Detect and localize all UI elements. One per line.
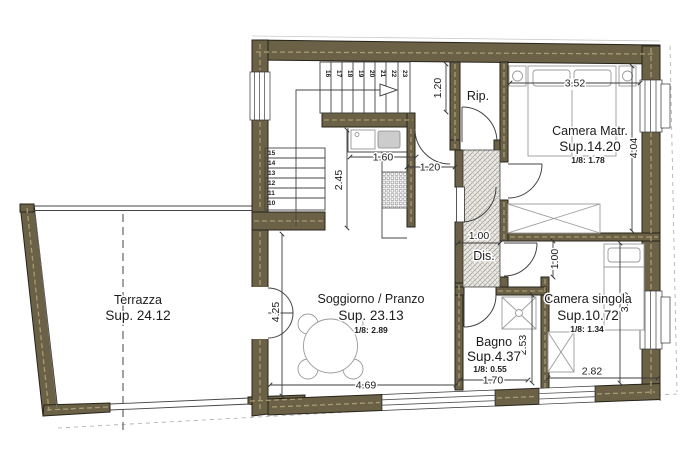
shaft-west-wall-lower (455, 222, 463, 283)
dim-matr-width: 3.52 (565, 78, 586, 90)
stair-num: 13 (268, 170, 276, 177)
label-matr-ratio: 1/8: 1.78 (571, 155, 605, 165)
dim-sogg-height: 4.25 (270, 302, 282, 323)
dim-singola-door: 1.00 (549, 249, 561, 270)
dis-corridor-hatch (463, 150, 500, 287)
shaft-west-wall-upper (455, 150, 463, 187)
dim-passage-width: 1.20 (420, 162, 441, 174)
bottom-wall-3 (595, 384, 660, 403)
label-rip-name: Rip. (467, 89, 489, 103)
kitchen-sink-icon (351, 130, 375, 149)
label-soggiorno-ratio: 1/8: 2.89 (354, 325, 388, 335)
label-soggiorno-name: Soggiorno / Pranzo (317, 292, 424, 306)
window-stairwell-left (250, 72, 270, 120)
stair-num: 18 (346, 70, 353, 78)
stair-num: 19 (357, 70, 364, 78)
label-matr-name: Camera Matr. (552, 124, 628, 138)
stair-num: 23 (401, 70, 408, 78)
window-singola-bottom (539, 386, 595, 404)
label-bagno-sup: Sup.4.37 (467, 349, 521, 364)
stair-num: 22 (390, 70, 397, 78)
stair-num: 12 (268, 180, 276, 187)
stair-num: 21 (379, 70, 386, 78)
dim-bagno-width: 1.70 (483, 375, 504, 387)
label-terrazza-name: Terrazza (114, 293, 162, 307)
kitchen-appliance-icon (382, 172, 407, 208)
dim-kitchen-width: 1.60 (373, 152, 394, 164)
shower (502, 297, 536, 329)
terrace-door-opening (251, 287, 269, 339)
stair-num: 20 (368, 70, 375, 78)
wardrobe-singola (548, 332, 574, 372)
dim-singola-width: 2.82 (582, 366, 603, 378)
dining-table (298, 314, 363, 379)
label-singola-name: Camera singola (544, 292, 632, 306)
stair-num: 15 (268, 150, 276, 157)
wardrobe-matr (508, 204, 600, 233)
stair-num: 10 (268, 200, 276, 207)
label-singola-sup: Sup.10.72 (557, 308, 619, 323)
label-matr-sup: Sup.14.20 (559, 139, 621, 154)
window-singola-right (640, 291, 670, 349)
label-terrazza-sup: Sup. 24.12 (105, 308, 170, 323)
dim-dis-width: 1.00 (469, 230, 490, 242)
window-matr-right (640, 80, 670, 132)
stair-num: 16 (324, 70, 331, 78)
label-dis-name: Dis. (473, 249, 495, 263)
dim-matr-height: 4.04 (628, 138, 640, 159)
label-soggiorno-sup: Sup. 23.13 (338, 308, 403, 323)
dim-kitchen-height: 2.45 (333, 170, 345, 191)
kitchen-basin-icon (378, 131, 400, 148)
label-singola-ratio: 1/8: 1.34 (570, 324, 604, 334)
stair-num: 17 (335, 70, 342, 78)
dim-sogg-width: 4.69 (356, 380, 377, 392)
stair-num: 11 (268, 190, 275, 197)
dim-stair-corridor: 1.20 (432, 78, 444, 99)
label-bagno-name: Bagno (476, 335, 512, 349)
floor-plan-canvas: 15 14 13 12 11 10 16 17 18 19 20 21 22 2… (0, 0, 700, 462)
label-bagno-ratio: 1/8: 0.55 (473, 364, 507, 374)
stair-num: 14 (268, 160, 276, 167)
